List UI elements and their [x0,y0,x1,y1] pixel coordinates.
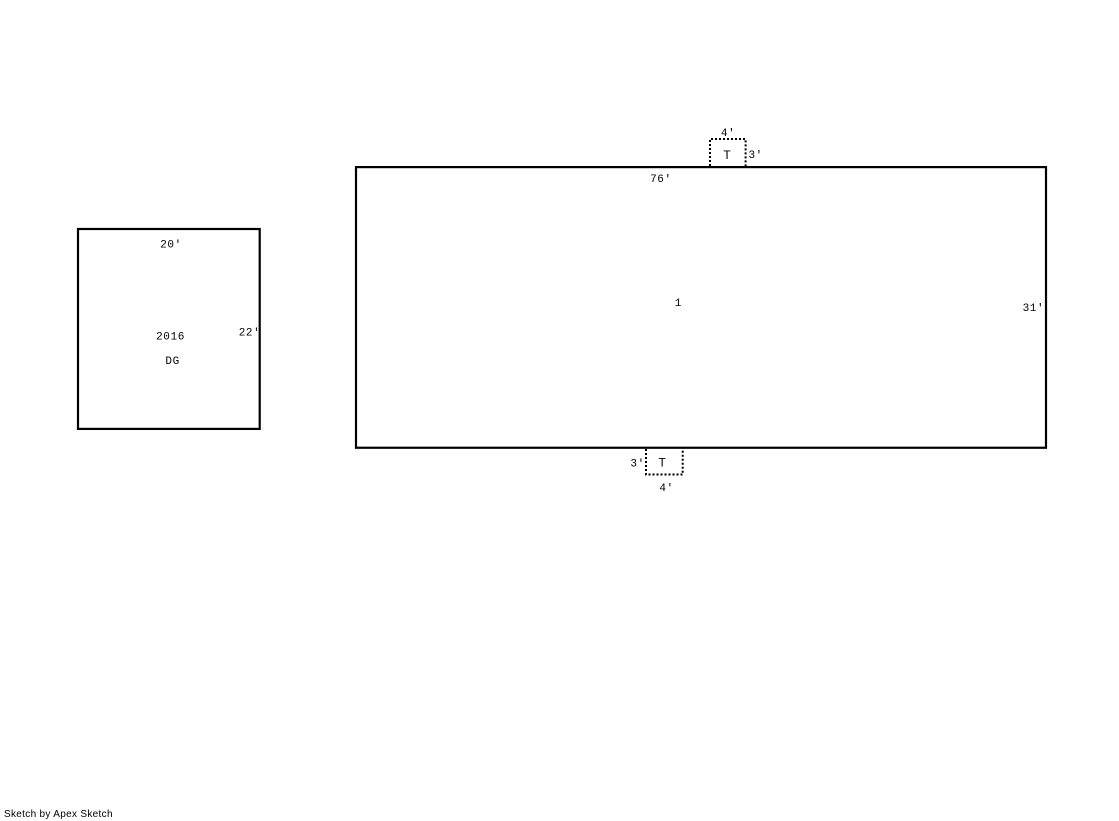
svg-text:DG: DG [165,356,179,368]
svg-text:31': 31' [1023,303,1045,315]
svg-text:3': 3' [748,150,762,162]
svg-text:T: T [659,456,667,470]
svg-text:22': 22' [239,327,261,339]
svg-text:4': 4' [721,128,735,140]
svg-text:20': 20' [160,239,182,251]
svg-text:1: 1 [675,298,682,310]
svg-text:4': 4' [659,483,673,495]
svg-text:3': 3' [630,458,644,470]
svg-text:2016: 2016 [156,331,185,343]
svg-text:T: T [723,148,731,162]
svg-text:Sketch by Apex Sketch: Sketch by Apex Sketch [4,809,113,820]
svg-text:76': 76' [650,174,672,186]
